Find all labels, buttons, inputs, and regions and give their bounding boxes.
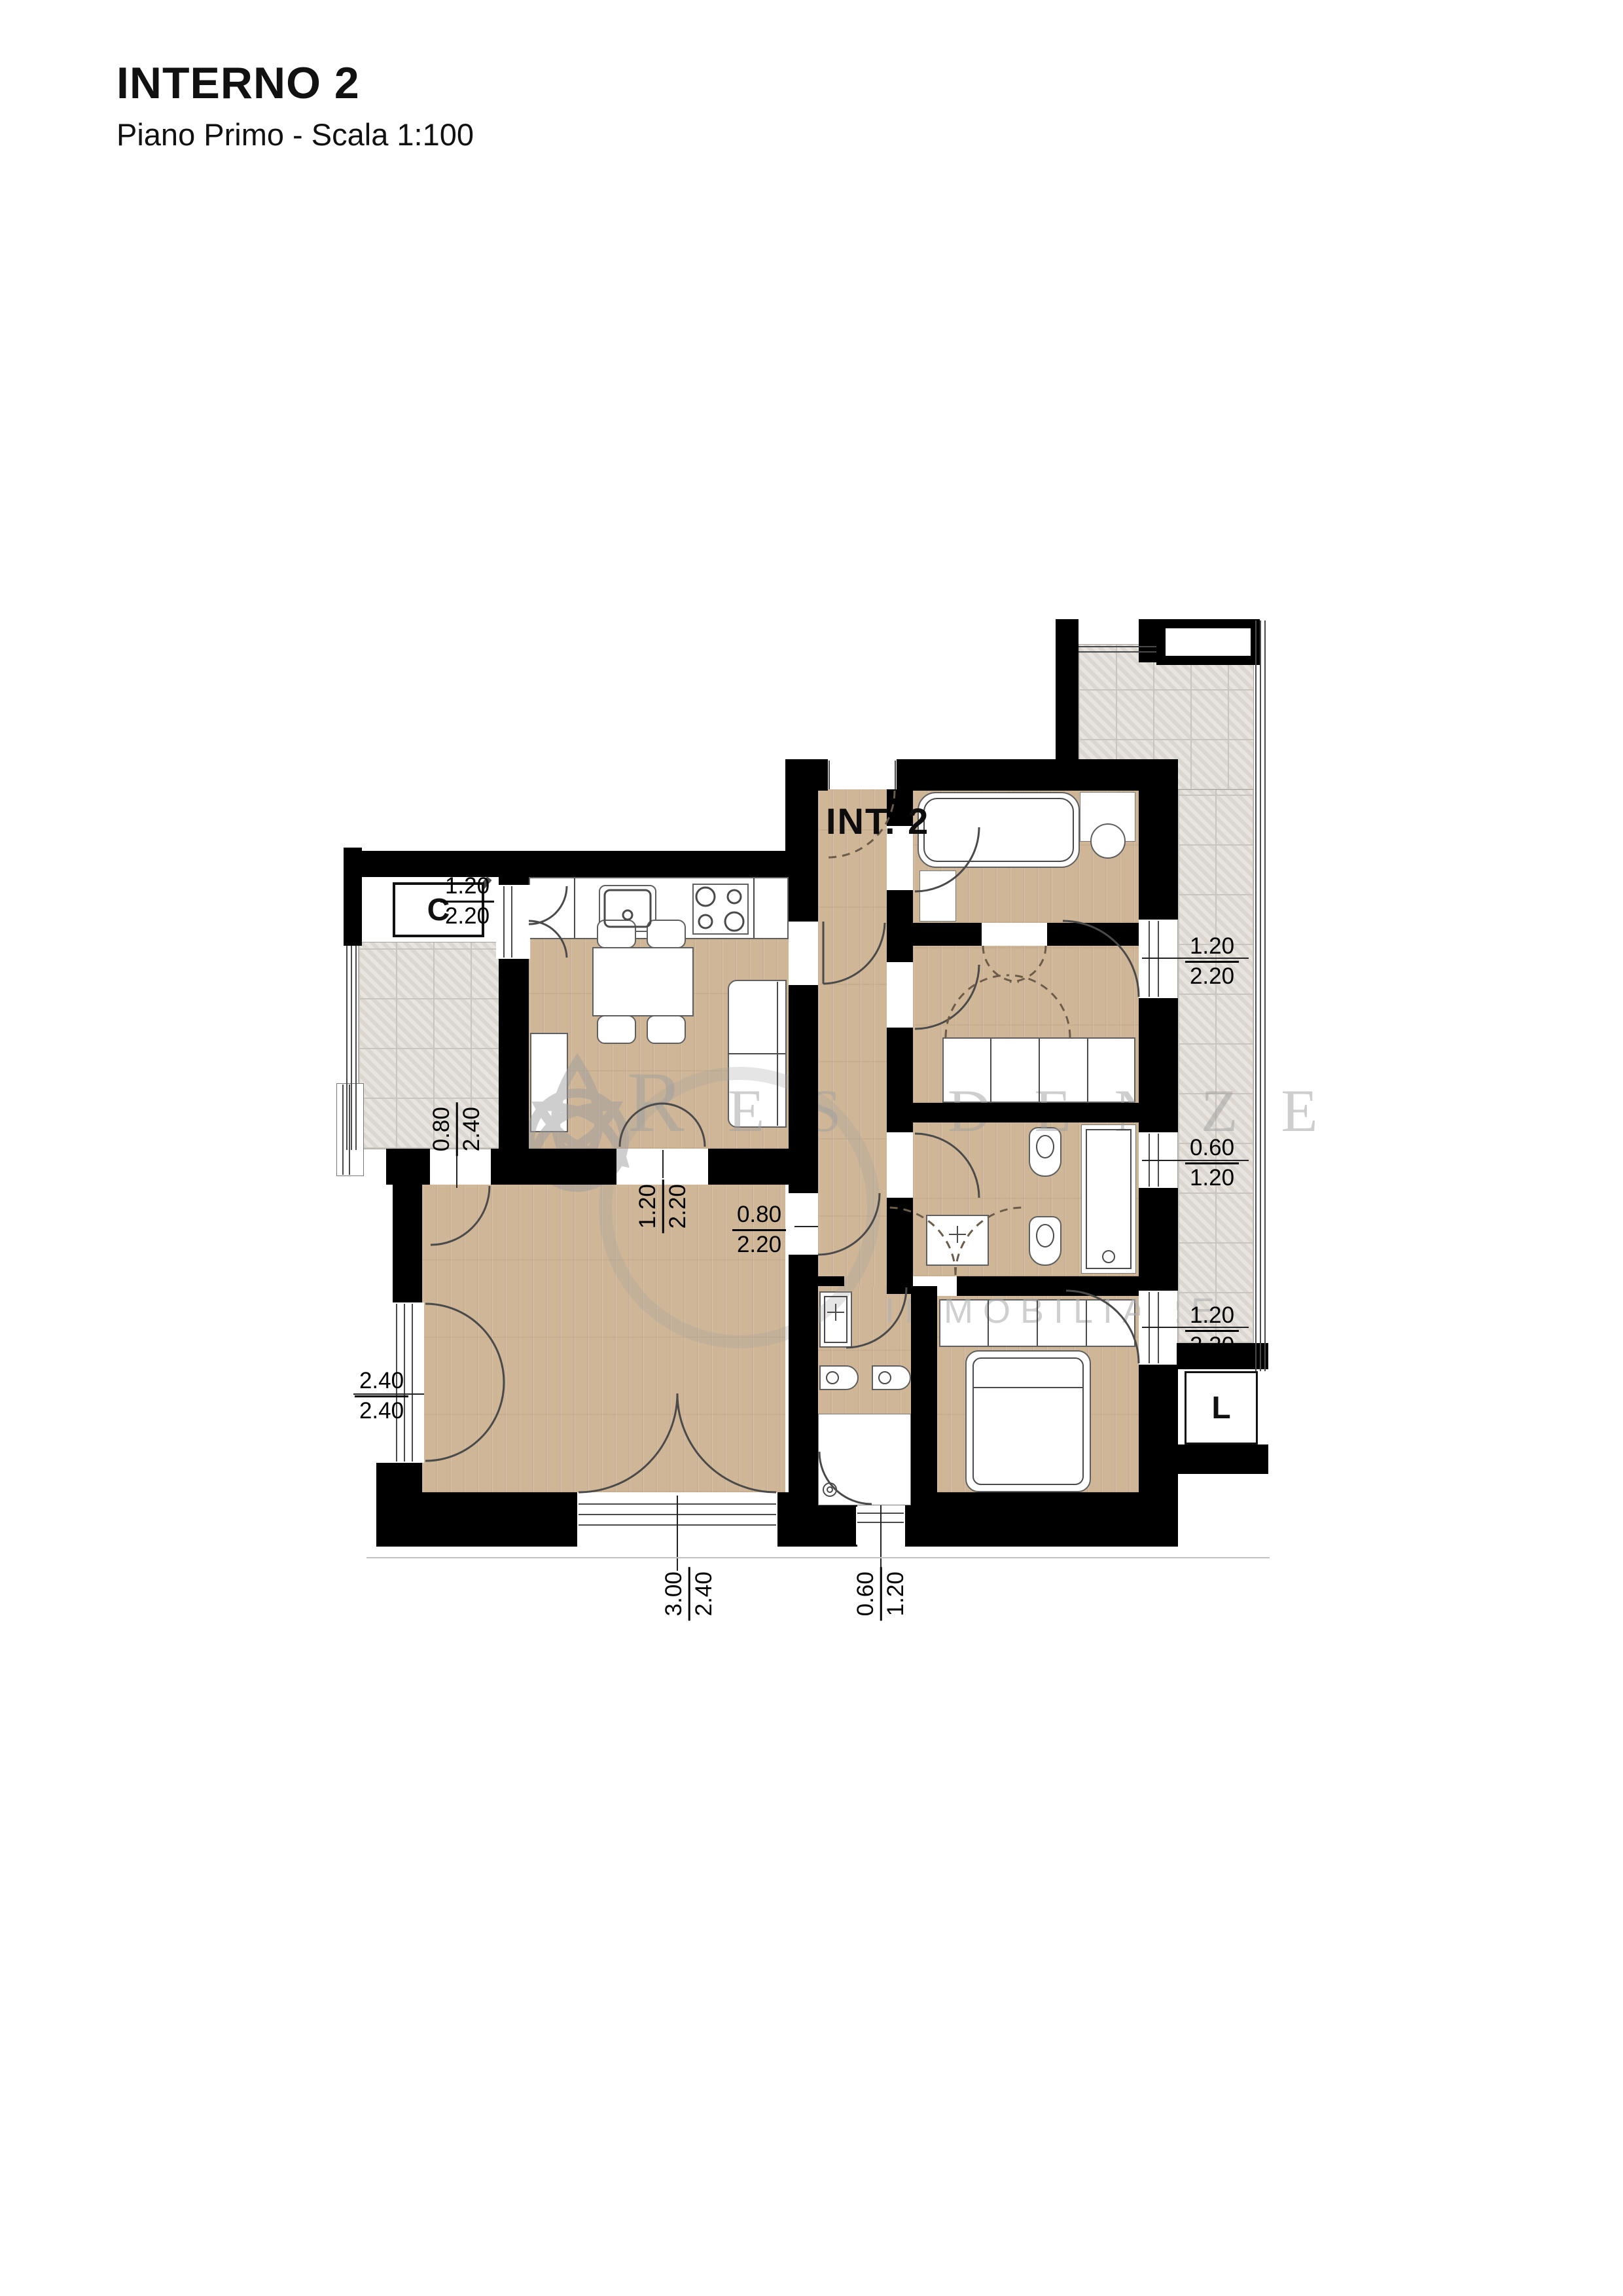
bath1-cabinet [919, 870, 956, 922]
dim-bath-ensuite-window: 0.60 1.20 [1181, 1136, 1243, 1191]
chair [597, 1015, 636, 1044]
wall [708, 1149, 789, 1185]
wall [785, 759, 828, 791]
page-title: INTERNO 2 [116, 58, 360, 109]
dim-terrace-living-door: 0.80 2.40 [430, 1098, 484, 1160]
dim-living-bottom-window: 3.00 2.40 [662, 1562, 717, 1625]
chair [647, 1015, 686, 1044]
dim-kitchen-living-opening: 1.20 2.20 [636, 1175, 690, 1238]
wall [1175, 1444, 1268, 1474]
wall [936, 1492, 1140, 1547]
elevator-label: L [1211, 1390, 1230, 1426]
wall [1139, 1365, 1178, 1547]
kitchen-hob [692, 884, 749, 935]
ensuite-window [1140, 1132, 1177, 1188]
dim-living-hall-door: 0.80 2.20 [728, 1203, 791, 1257]
elevator-box: L [1185, 1371, 1258, 1444]
bath2-toilet [872, 1365, 911, 1390]
wall [957, 1276, 1139, 1296]
double-bed [965, 1350, 1091, 1492]
wall [376, 1463, 422, 1496]
bath2-bidet [819, 1365, 859, 1390]
bath2-shower [818, 1414, 911, 1505]
wall [789, 877, 818, 922]
wall [491, 1149, 616, 1185]
wall [376, 1492, 577, 1547]
dim-living-left-window: 2.40 2.40 [350, 1369, 413, 1424]
bath1-round-basin [1090, 823, 1126, 859]
bedroom-window [1140, 1291, 1177, 1365]
wall [1139, 998, 1178, 1132]
wall [897, 759, 1178, 791]
wall [386, 1149, 430, 1185]
ensuite-washbasin-cabinet [926, 1215, 989, 1266]
wall [1056, 619, 1079, 791]
wall [905, 1505, 936, 1547]
dim-balcony-kitchen-door: 1.20 2.20 [436, 874, 499, 929]
wall [1047, 923, 1139, 946]
wall [887, 1028, 913, 1132]
planter-inner [1166, 628, 1251, 656]
wall [789, 985, 818, 1193]
wall [344, 851, 789, 877]
balcony-kitchen-door [496, 885, 530, 959]
unit-label: INT. 2 [826, 800, 929, 842]
chair [647, 920, 686, 948]
wall [499, 959, 529, 1149]
bath2-washbasin [819, 1291, 852, 1348]
wall [818, 1505, 857, 1547]
sideboard [530, 1033, 568, 1132]
ensuite-bidet [1029, 1216, 1061, 1266]
floorplan-page: INTERNO 2 Piano Primo - Scala 1:100 RESI… [0, 0, 1623, 2296]
entry-door-opening [828, 761, 897, 789]
wall [344, 848, 362, 946]
wall [887, 890, 913, 962]
dim-bath-main-window: 0.60 1.20 [854, 1562, 908, 1625]
dim-room2-window: 1.20 2.20 [1181, 935, 1243, 989]
wall [913, 923, 982, 946]
watermark-brand: RESIDENZE [627, 1052, 1361, 1152]
wall [1139, 1188, 1178, 1291]
dining-table [592, 947, 694, 1016]
stair-landing-window [336, 1083, 364, 1176]
floor-entry-corridor [818, 789, 887, 1294]
wall [777, 1492, 818, 1547]
dim-bedroom-window: 1.20 2.20 [1181, 1304, 1243, 1358]
wall [913, 1103, 1139, 1122]
chair [597, 920, 636, 948]
living-bottom-window [577, 1494, 777, 1541]
wall [789, 1276, 844, 1286]
wall [1139, 619, 1158, 662]
page-subtitle: Piano Primo - Scala 1:100 [116, 117, 474, 152]
bath-main-window [856, 1507, 905, 1545]
bathtub [918, 792, 1080, 868]
wall [1139, 791, 1178, 920]
room2-window [1140, 920, 1177, 998]
wall [906, 1276, 913, 1286]
